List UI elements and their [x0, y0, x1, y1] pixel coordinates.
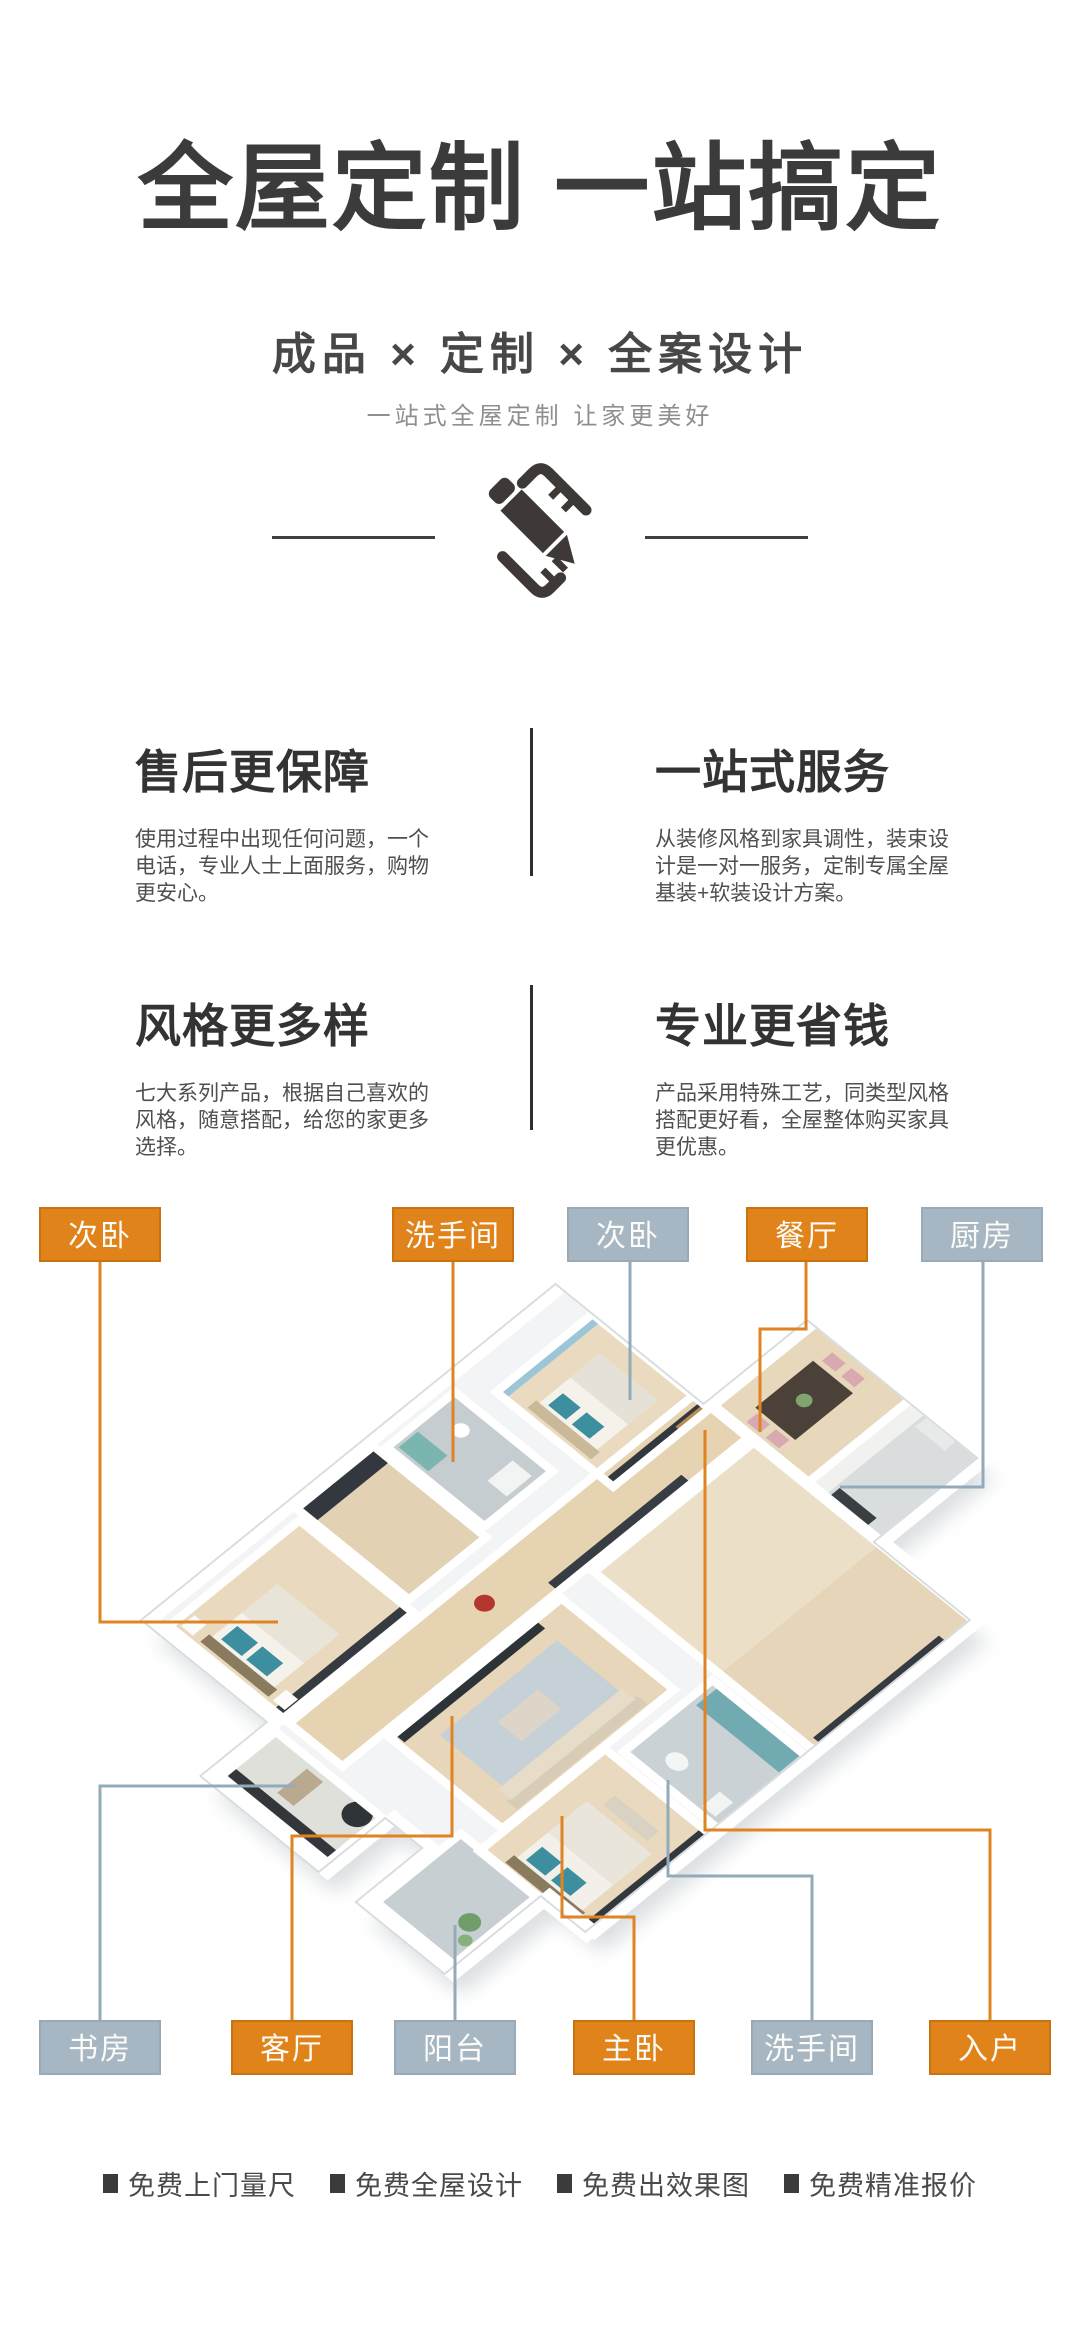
floorplan-illustration [0, 1200, 1080, 2100]
iso-apartment [75, 1200, 1080, 2014]
room-label-living: 客厅 [231, 2020, 353, 2075]
room-label-bathroom-bottom: 洗手间 [751, 2020, 873, 2075]
feature-savings: 专业更省钱 产品采用特殊工艺，同类型风格搭配更好看，全屋整体购买家具更优惠。 [655, 990, 955, 1161]
room-label-bathroom-top: 洗手间 [392, 1207, 514, 1262]
service-label: 免费出效果图 [582, 2164, 750, 2203]
feature-title: 一站式服务 [655, 736, 955, 802]
divider-line-right [645, 536, 808, 539]
bullet-square-icon [784, 2174, 799, 2193]
room-label-entry: 入户 [929, 2020, 1051, 2075]
divider-line-left [272, 536, 435, 539]
feature-aftersales: 售后更保障 使用过程中出现任何问题，一个电话，专业人士上面服务，购物更安心。 [135, 736, 435, 907]
feature-divider-top [530, 728, 533, 876]
pencil-and-ruler-icon [468, 462, 622, 612]
hero-tagline: 一站式全屋定制 让家更美好 [0, 396, 1080, 431]
service-label: 免费精准报价 [809, 2164, 977, 2203]
bullet-square-icon [330, 2174, 345, 2193]
feature-body: 七大系列产品，根据自己喜欢的风格，随意搭配，给您的家更多选择。 [135, 1080, 433, 1161]
promo-page: 全屋定制 一站搞定 成品 × 定制 × 全案设计 一站式全屋定制 让家更美好 售… [0, 0, 1080, 2345]
room-label-master: 主卧 [573, 2020, 695, 2075]
free-services-row: 免费上门量尺 免费全屋设计 免费出效果图 免费精准报价 [0, 2164, 1080, 2203]
service-label: 免费上门量尺 [128, 2164, 296, 2203]
feature-onestop: 一站式服务 从装修风格到家具调性，装束设计是一对一服务，定制专属全屋基装+软装设… [655, 736, 955, 907]
feature-title: 风格更多样 [135, 990, 435, 1056]
room-label-balcony: 阳台 [394, 2020, 516, 2075]
hero-subtitle: 成品 × 定制 × 全案设计 [0, 318, 1080, 382]
feature-divider-bottom [530, 985, 533, 1130]
bullet-square-icon [103, 2174, 118, 2193]
room-label-bedroom2-left: 次卧 [39, 1207, 161, 1262]
room-label-kitchen: 厨房 [921, 1207, 1043, 1262]
feature-body: 使用过程中出现任何问题，一个电话，专业人士上面服务，购物更安心。 [135, 826, 433, 907]
service-item: 免费精准报价 [784, 2164, 977, 2203]
feature-body: 产品采用特殊工艺，同类型风格搭配更好看，全屋整体购买家具更优惠。 [655, 1080, 953, 1161]
room-label-study: 书房 [39, 2020, 161, 2075]
service-item: 免费上门量尺 [103, 2164, 296, 2203]
feature-styles: 风格更多样 七大系列产品，根据自己喜欢的风格，随意搭配，给您的家更多选择。 [135, 990, 435, 1161]
service-label: 免费全屋设计 [355, 2164, 523, 2203]
service-item: 免费出效果图 [557, 2164, 750, 2203]
feature-body: 从装修风格到家具调性，装束设计是一对一服务，定制专属全屋基装+软装设计方案。 [655, 826, 953, 907]
feature-title: 售后更保障 [135, 736, 435, 802]
service-item: 免费全屋设计 [330, 2164, 523, 2203]
page-title: 全屋定制 一站搞定 [0, 112, 1080, 249]
feature-title: 专业更省钱 [655, 990, 955, 1056]
bullet-square-icon [557, 2174, 572, 2193]
room-label-bedroom2-top: 次卧 [567, 1207, 689, 1262]
room-label-dining: 餐厅 [746, 1207, 868, 1262]
